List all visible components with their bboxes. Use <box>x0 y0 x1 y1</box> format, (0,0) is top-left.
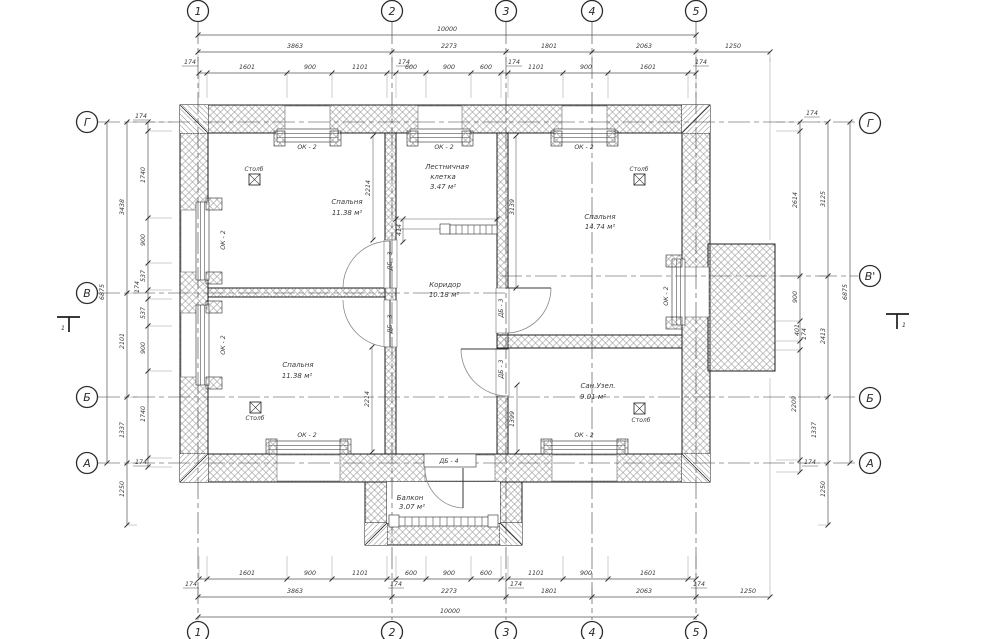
axis-marker-label: 5 <box>693 626 700 639</box>
dim-left: 6875 <box>99 284 106 300</box>
dim-right: 2614 <box>792 192 799 208</box>
axis-marker-label: 3 <box>503 626 510 639</box>
door-label: ДБ - 3 <box>498 359 505 379</box>
room-label: 3.47 м² <box>430 183 456 191</box>
window-label: ОК - 2 <box>297 432 316 439</box>
dim-right: 174 <box>806 110 818 117</box>
dim-bottom: 600 <box>405 570 417 577</box>
dim-left: 1250 <box>119 481 126 497</box>
dim-right: 2209 <box>791 396 798 412</box>
door-arc <box>506 288 551 333</box>
dim-right: 1337 <box>811 422 818 438</box>
partition-axis-2 <box>385 133 396 454</box>
dim-left: 174 <box>135 113 147 120</box>
dim-top: 1601 <box>239 64 255 71</box>
partition-bathroom <box>497 335 682 348</box>
room-label: клетка <box>430 173 456 181</box>
dim-top: 1250 <box>725 43 741 50</box>
window-label: ОК - 2 <box>220 335 227 354</box>
column-label: Столб <box>245 166 264 173</box>
room-label: 14.74 м² <box>585 223 616 231</box>
axis-marker-label: 2 <box>389 5 396 18</box>
axis-marker-label: А <box>82 457 91 470</box>
door-label: ДБ - 3 <box>498 298 505 318</box>
dim-top: 174 <box>508 59 520 66</box>
window-label: ОК - 2 <box>297 144 316 151</box>
window-opening <box>285 106 330 132</box>
dim-bottom: 900 <box>304 570 316 577</box>
dim-top: 900 <box>580 64 592 71</box>
room-label: 10.18 м² <box>429 291 460 299</box>
dim-top: 900 <box>443 64 455 71</box>
dim-interior: 1399 <box>509 411 516 427</box>
dim-bottom: 1601 <box>239 570 255 577</box>
dim-bottom: 174 <box>693 581 705 588</box>
dim-interior: 2214 <box>364 391 371 407</box>
dim-bottom: 1101 <box>352 570 368 577</box>
dim-bottom: 174 <box>390 581 402 588</box>
dim-bottom: 174 <box>185 581 197 588</box>
section-label: 1 <box>61 324 65 332</box>
axis-marker-label: Г <box>867 117 874 130</box>
dim-bottom: 900 <box>580 570 592 577</box>
dim-top: 2063 <box>636 43 652 50</box>
axis-marker-label: 5 <box>693 5 700 18</box>
axis-marker-label: 4 <box>589 5 596 18</box>
dim-left: 174 <box>134 281 141 293</box>
room-label: Лестничная <box>424 163 469 171</box>
stair-flight <box>450 225 497 234</box>
axis-marker-label: Г <box>84 116 91 129</box>
window-opening <box>552 455 617 481</box>
axis-marker-label: 4 <box>589 626 596 639</box>
dim-left: 1740 <box>140 406 147 422</box>
dim-top: 3863 <box>287 43 303 50</box>
axis-marker-label: А <box>865 457 874 470</box>
dim-bottom: 3863 <box>287 588 303 595</box>
door-label: ДБ - 3 <box>387 314 394 334</box>
balcony-railing <box>389 515 498 527</box>
dim-bottom: 1250 <box>740 588 756 595</box>
room-label: Спальня <box>331 198 362 206</box>
dim-right: 401 <box>794 324 801 336</box>
dim-left: 2101 <box>119 333 126 349</box>
dim-top: 600 <box>405 64 417 71</box>
room-label: Спальня <box>584 213 615 221</box>
dim-right: 2413 <box>820 328 827 344</box>
room-label: Балкон <box>397 494 424 502</box>
door-label: ДБ - 4 <box>438 458 458 465</box>
window-label: ОК - 2 <box>663 286 670 305</box>
dim-bottom: 1101 <box>528 570 544 577</box>
dim-bottom: 10000 <box>440 608 460 615</box>
column-label: Столб <box>632 417 651 424</box>
axis-marker-label: 1 <box>195 5 202 18</box>
dim-left: 3438 <box>119 199 126 215</box>
dim-left: 900 <box>140 342 147 354</box>
dim-top: 1101 <box>352 64 368 71</box>
partition-axis-v <box>208 288 385 297</box>
room-label: 11.38 м² <box>332 209 363 217</box>
axis-marker-label: В <box>83 287 91 300</box>
axis-marker-label: В' <box>865 270 876 283</box>
axis-marker-label: Б <box>83 391 91 404</box>
dim-interior: 3139 <box>509 199 516 215</box>
door-label: ДБ - 3 <box>387 251 394 271</box>
dim-bottom: 1801 <box>541 588 557 595</box>
dim-interior: 414 <box>396 224 403 236</box>
stove-mass <box>708 244 775 371</box>
dim-right: 1250 <box>820 481 827 497</box>
room-label: 11.38 м² <box>282 372 313 380</box>
dim-top: 900 <box>304 64 316 71</box>
window-opening <box>277 455 340 481</box>
dim-top: 1801 <box>541 43 557 50</box>
dim-top: 10000 <box>437 26 457 33</box>
dim-bottom: 2273 <box>441 588 457 595</box>
dim-top: 1601 <box>640 64 656 71</box>
window-label: ОК - 2 <box>220 230 227 249</box>
dim-right: 900 <box>792 291 799 303</box>
dim-right: 6875 <box>842 284 849 300</box>
axis-marker-label: 1 <box>195 626 202 639</box>
dim-top: 1101 <box>528 64 544 71</box>
dim-left: 900 <box>140 234 147 246</box>
room-label: Коридор <box>429 281 461 289</box>
floor-plan-drawing: Спальня11.38 м²Лестничнаяклетка3.47 м²Ко… <box>0 0 1000 639</box>
wall-left <box>180 105 208 482</box>
room-label: 9.01 м² <box>580 393 606 401</box>
door-arc <box>343 300 390 347</box>
dim-bottom: 600 <box>480 570 492 577</box>
dim-left: 174 <box>135 459 147 466</box>
dim-right: 3125 <box>820 191 827 207</box>
dim-interior: 2214 <box>365 180 372 196</box>
dim-top: 174 <box>695 59 707 66</box>
dim-bottom: 2063 <box>636 588 652 595</box>
dim-bottom: 1601 <box>640 570 656 577</box>
room-label: 3.07 м² <box>399 503 425 511</box>
window-label: ОК - 2 <box>574 432 593 439</box>
dim-bottom: 174 <box>510 581 522 588</box>
window-opening <box>418 106 462 132</box>
dim-left: 1337 <box>119 422 126 438</box>
room-label: Спальня <box>282 361 313 369</box>
dim-top: 2273 <box>441 43 457 50</box>
dim-left: 537 <box>140 307 147 319</box>
dim-left: 1740 <box>140 167 147 183</box>
floor-plan-canvas: Спальня11.38 м²Лестничнаяклетка3.47 м²Ко… <box>0 0 1000 639</box>
axis-marker-label: 3 <box>503 5 510 18</box>
dim-top: 600 <box>480 64 492 71</box>
window-label: ОК - 2 <box>574 144 593 151</box>
dim-right: 174 <box>801 328 808 340</box>
axis-marker-label: Б <box>866 392 874 405</box>
column-label: Столб <box>246 415 265 422</box>
stair <box>398 224 497 234</box>
section-label: 1 <box>902 321 906 329</box>
column-label: Столб <box>630 166 649 173</box>
dim-top: 174 <box>184 59 196 66</box>
dim-left: 537 <box>140 270 147 282</box>
room-label: Сан.Узел. <box>581 382 616 390</box>
dim-bottom: 900 <box>443 570 455 577</box>
axis-marker-label: 2 <box>389 626 396 639</box>
window-label: ОК - 2 <box>434 144 453 151</box>
window-opening <box>562 106 607 132</box>
dim-right: 174 <box>804 459 816 466</box>
door-arc <box>343 241 390 288</box>
